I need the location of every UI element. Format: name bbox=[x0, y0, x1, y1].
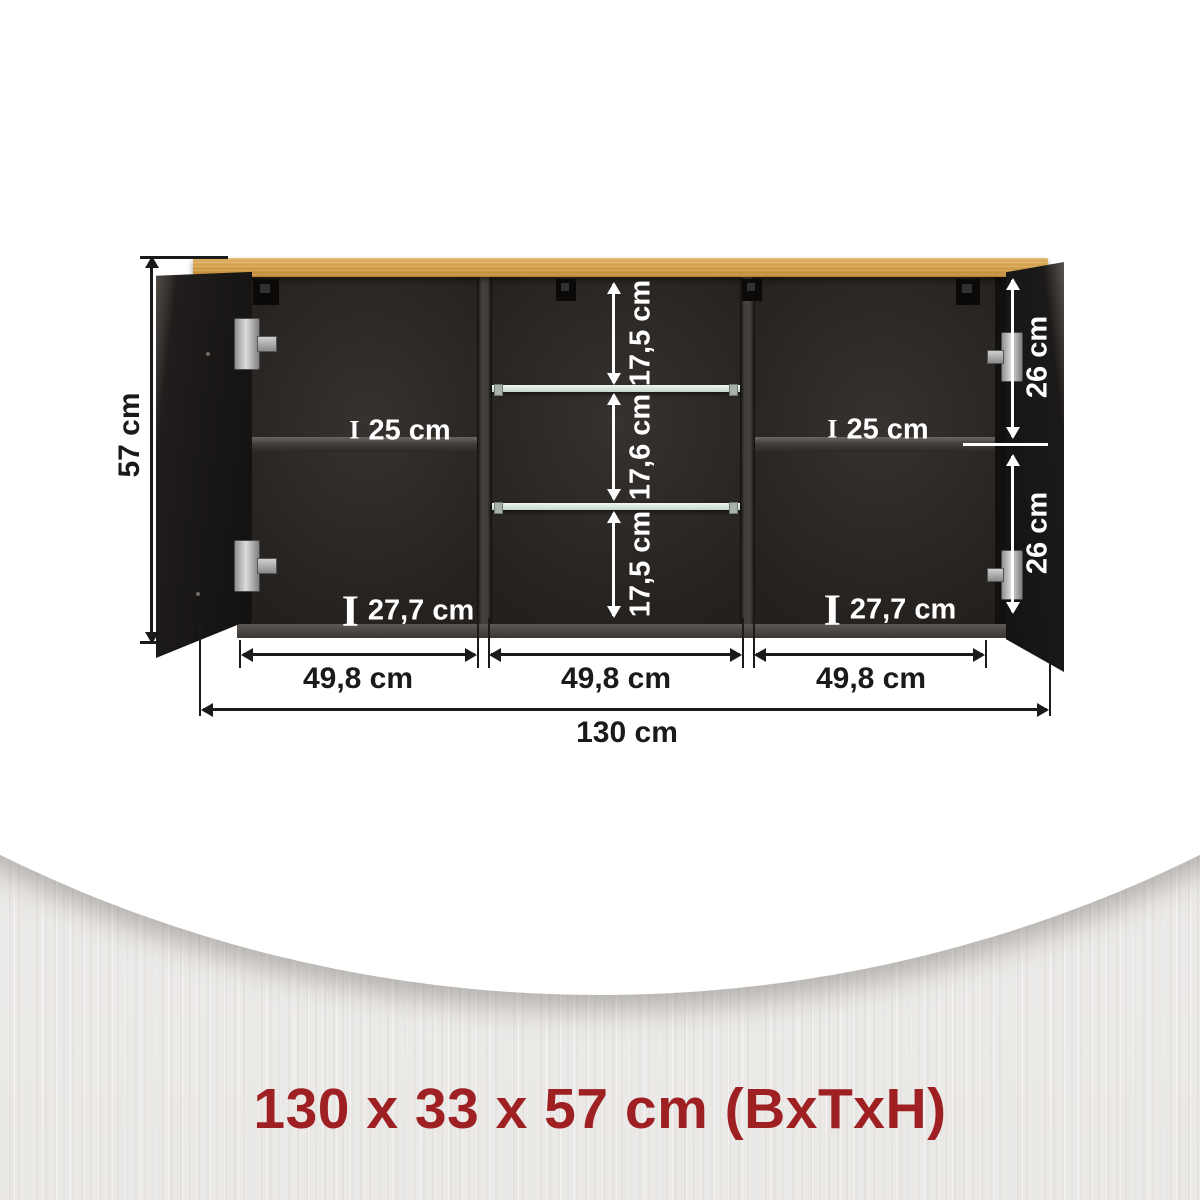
shelf-depth-value-right: 25 cm bbox=[846, 414, 928, 447]
door-segment-top-label: 26 cm bbox=[1022, 316, 1055, 398]
depth-marker-icon: I bbox=[349, 421, 359, 442]
section-width-arrow-2 bbox=[491, 653, 740, 656]
door-segment-bottom-label: 26 cm bbox=[1022, 492, 1055, 574]
sideboard-diagram: 17,5 cm 17,6 cm 17,5 cm 26 cm 26 cm I 25… bbox=[0, 0, 1200, 1200]
divider-right bbox=[740, 277, 755, 624]
total-width-label: 130 cm bbox=[576, 716, 678, 750]
extension-tick bbox=[742, 618, 744, 668]
door-mount-bracket bbox=[742, 279, 762, 301]
total-width-arrow bbox=[203, 708, 1047, 711]
door-segment-bottom-arrow bbox=[1011, 456, 1014, 612]
section-width-label-1: 49,8 cm bbox=[303, 662, 413, 696]
door-mount-bracket bbox=[556, 279, 576, 301]
gap-top-arrow bbox=[612, 284, 615, 383]
screw-hole bbox=[206, 352, 210, 356]
hinge-arm bbox=[987, 350, 1004, 364]
hinge-arm bbox=[257, 558, 277, 574]
gap-top-label: 17,5 cm bbox=[625, 280, 658, 386]
section-width-arrow-3 bbox=[756, 653, 983, 656]
oak-top-board bbox=[193, 258, 1048, 277]
screw-hole bbox=[196, 592, 200, 596]
product-size-caption: 130 x 33 x 57 cm (BxTxH) bbox=[0, 1076, 1200, 1142]
bottom-height-label-left: I 27,7 cm bbox=[342, 593, 475, 628]
hinge-arm bbox=[257, 336, 277, 352]
hinge-arm bbox=[987, 568, 1004, 582]
shelf-depth-label-left: I 25 cm bbox=[349, 415, 450, 448]
height-dimension-arrow bbox=[150, 258, 153, 642]
glass-shelf-lower bbox=[492, 503, 740, 510]
depth-marker-icon: I bbox=[827, 420, 837, 441]
height-marker-icon: I bbox=[824, 592, 841, 627]
gap-bottom-arrow bbox=[612, 513, 615, 616]
gap-middle-arrow bbox=[612, 395, 615, 499]
extension-tick bbox=[985, 640, 987, 668]
door-mount-bracket bbox=[956, 279, 980, 305]
height-marker-icon: I bbox=[342, 593, 359, 628]
gap-bottom-label: 17,5 cm bbox=[625, 511, 658, 617]
door-mount-bracket bbox=[253, 279, 279, 305]
section-width-label-3: 49,8 cm bbox=[816, 662, 926, 696]
total-width-extension-right bbox=[1049, 656, 1051, 716]
bottom-height-value-left: 27,7 cm bbox=[368, 595, 474, 628]
height-label: 57 cm bbox=[113, 392, 147, 477]
divider-left bbox=[477, 277, 492, 624]
door-segment-separator bbox=[963, 443, 1048, 446]
section-width-label-2: 49,8 cm bbox=[561, 662, 671, 696]
product-dimension-diagram: 17,5 cm 17,6 cm 17,5 cm 26 cm 26 cm I 25… bbox=[0, 0, 1200, 1200]
section-width-arrow-1 bbox=[243, 653, 475, 656]
shelf-depth-label-right: I 25 cm bbox=[827, 414, 928, 447]
gap-middle-label: 17,6 cm bbox=[625, 394, 658, 500]
door-segment-top-arrow bbox=[1011, 280, 1014, 437]
bottom-height-label-right: I 27,7 cm bbox=[824, 592, 957, 627]
compartment-center bbox=[492, 277, 740, 624]
glass-shelf-upper bbox=[492, 385, 740, 392]
bottom-height-value-right: 27,7 cm bbox=[850, 594, 956, 627]
shelf-depth-value-left: 25 cm bbox=[368, 415, 450, 448]
extension-tick bbox=[477, 618, 479, 668]
